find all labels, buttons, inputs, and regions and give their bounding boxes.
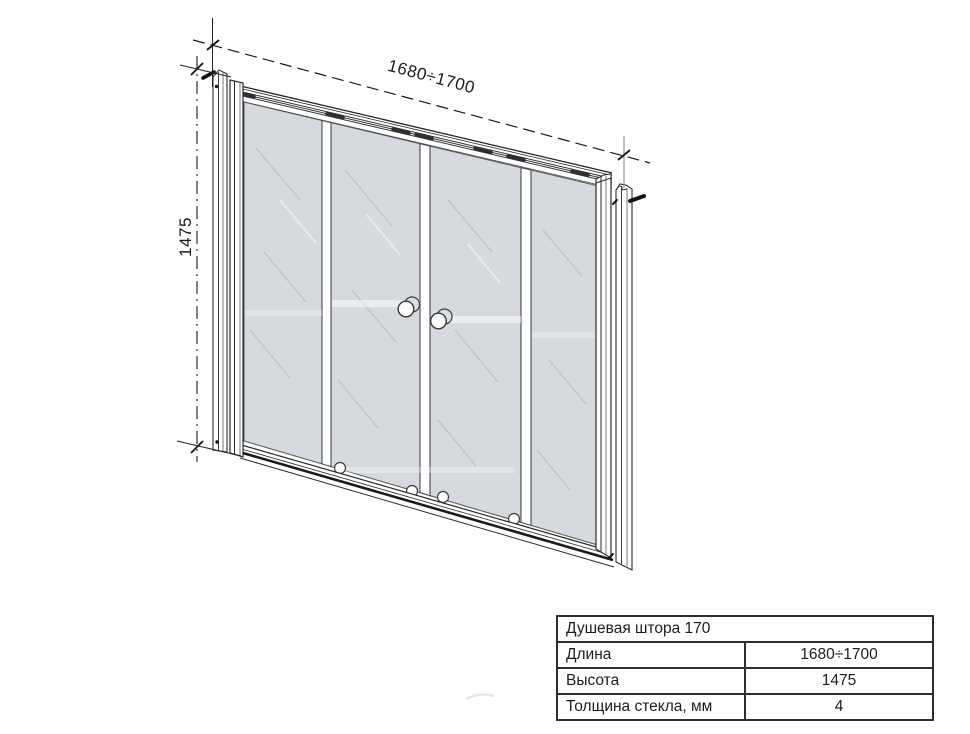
spec-value-length: 1680÷1700 — [745, 642, 933, 668]
spec-table-row-height: Высота 1475 — [557, 668, 933, 694]
divider-3 — [521, 168, 531, 526]
frame-right-post — [596, 174, 611, 558]
divider-1 — [322, 121, 331, 467]
glass-panel-4 — [531, 170, 598, 545]
spec-value-glass-thickness: 4 — [745, 694, 933, 720]
glass-panel-1 — [244, 102, 322, 464]
height-dimension-label: 1475 — [176, 217, 195, 257]
width-dimension-label: 1680÷1700 — [386, 56, 477, 98]
screw-dot-left-bottom — [215, 440, 218, 443]
spec-label-glass-thickness: Толщина стекла, мм — [557, 694, 745, 720]
spec-value-height: 1475 — [745, 668, 933, 694]
spec-table-row-length: Длина 1680÷1700 — [557, 642, 933, 668]
divider-2 — [420, 144, 430, 496]
wall-profile-left — [213, 70, 227, 452]
spec-table-title-row: Душевая штора 170 — [557, 616, 933, 642]
faint-watermark-mark — [466, 695, 494, 699]
spec-table: Душевая штора 170 Длина 1680÷1700 Высота… — [556, 615, 934, 721]
spec-label-length: Длина — [557, 642, 745, 668]
screw-dot-left-top — [215, 85, 218, 88]
spec-table-title: Душевая штора 170 — [557, 616, 933, 642]
frame-left-post — [230, 80, 243, 457]
spec-table-row-glass-thickness: Толщина стекла, мм 4 — [557, 694, 933, 720]
spec-label-height: Высота — [557, 668, 745, 694]
wall-profile-right — [616, 184, 632, 570]
